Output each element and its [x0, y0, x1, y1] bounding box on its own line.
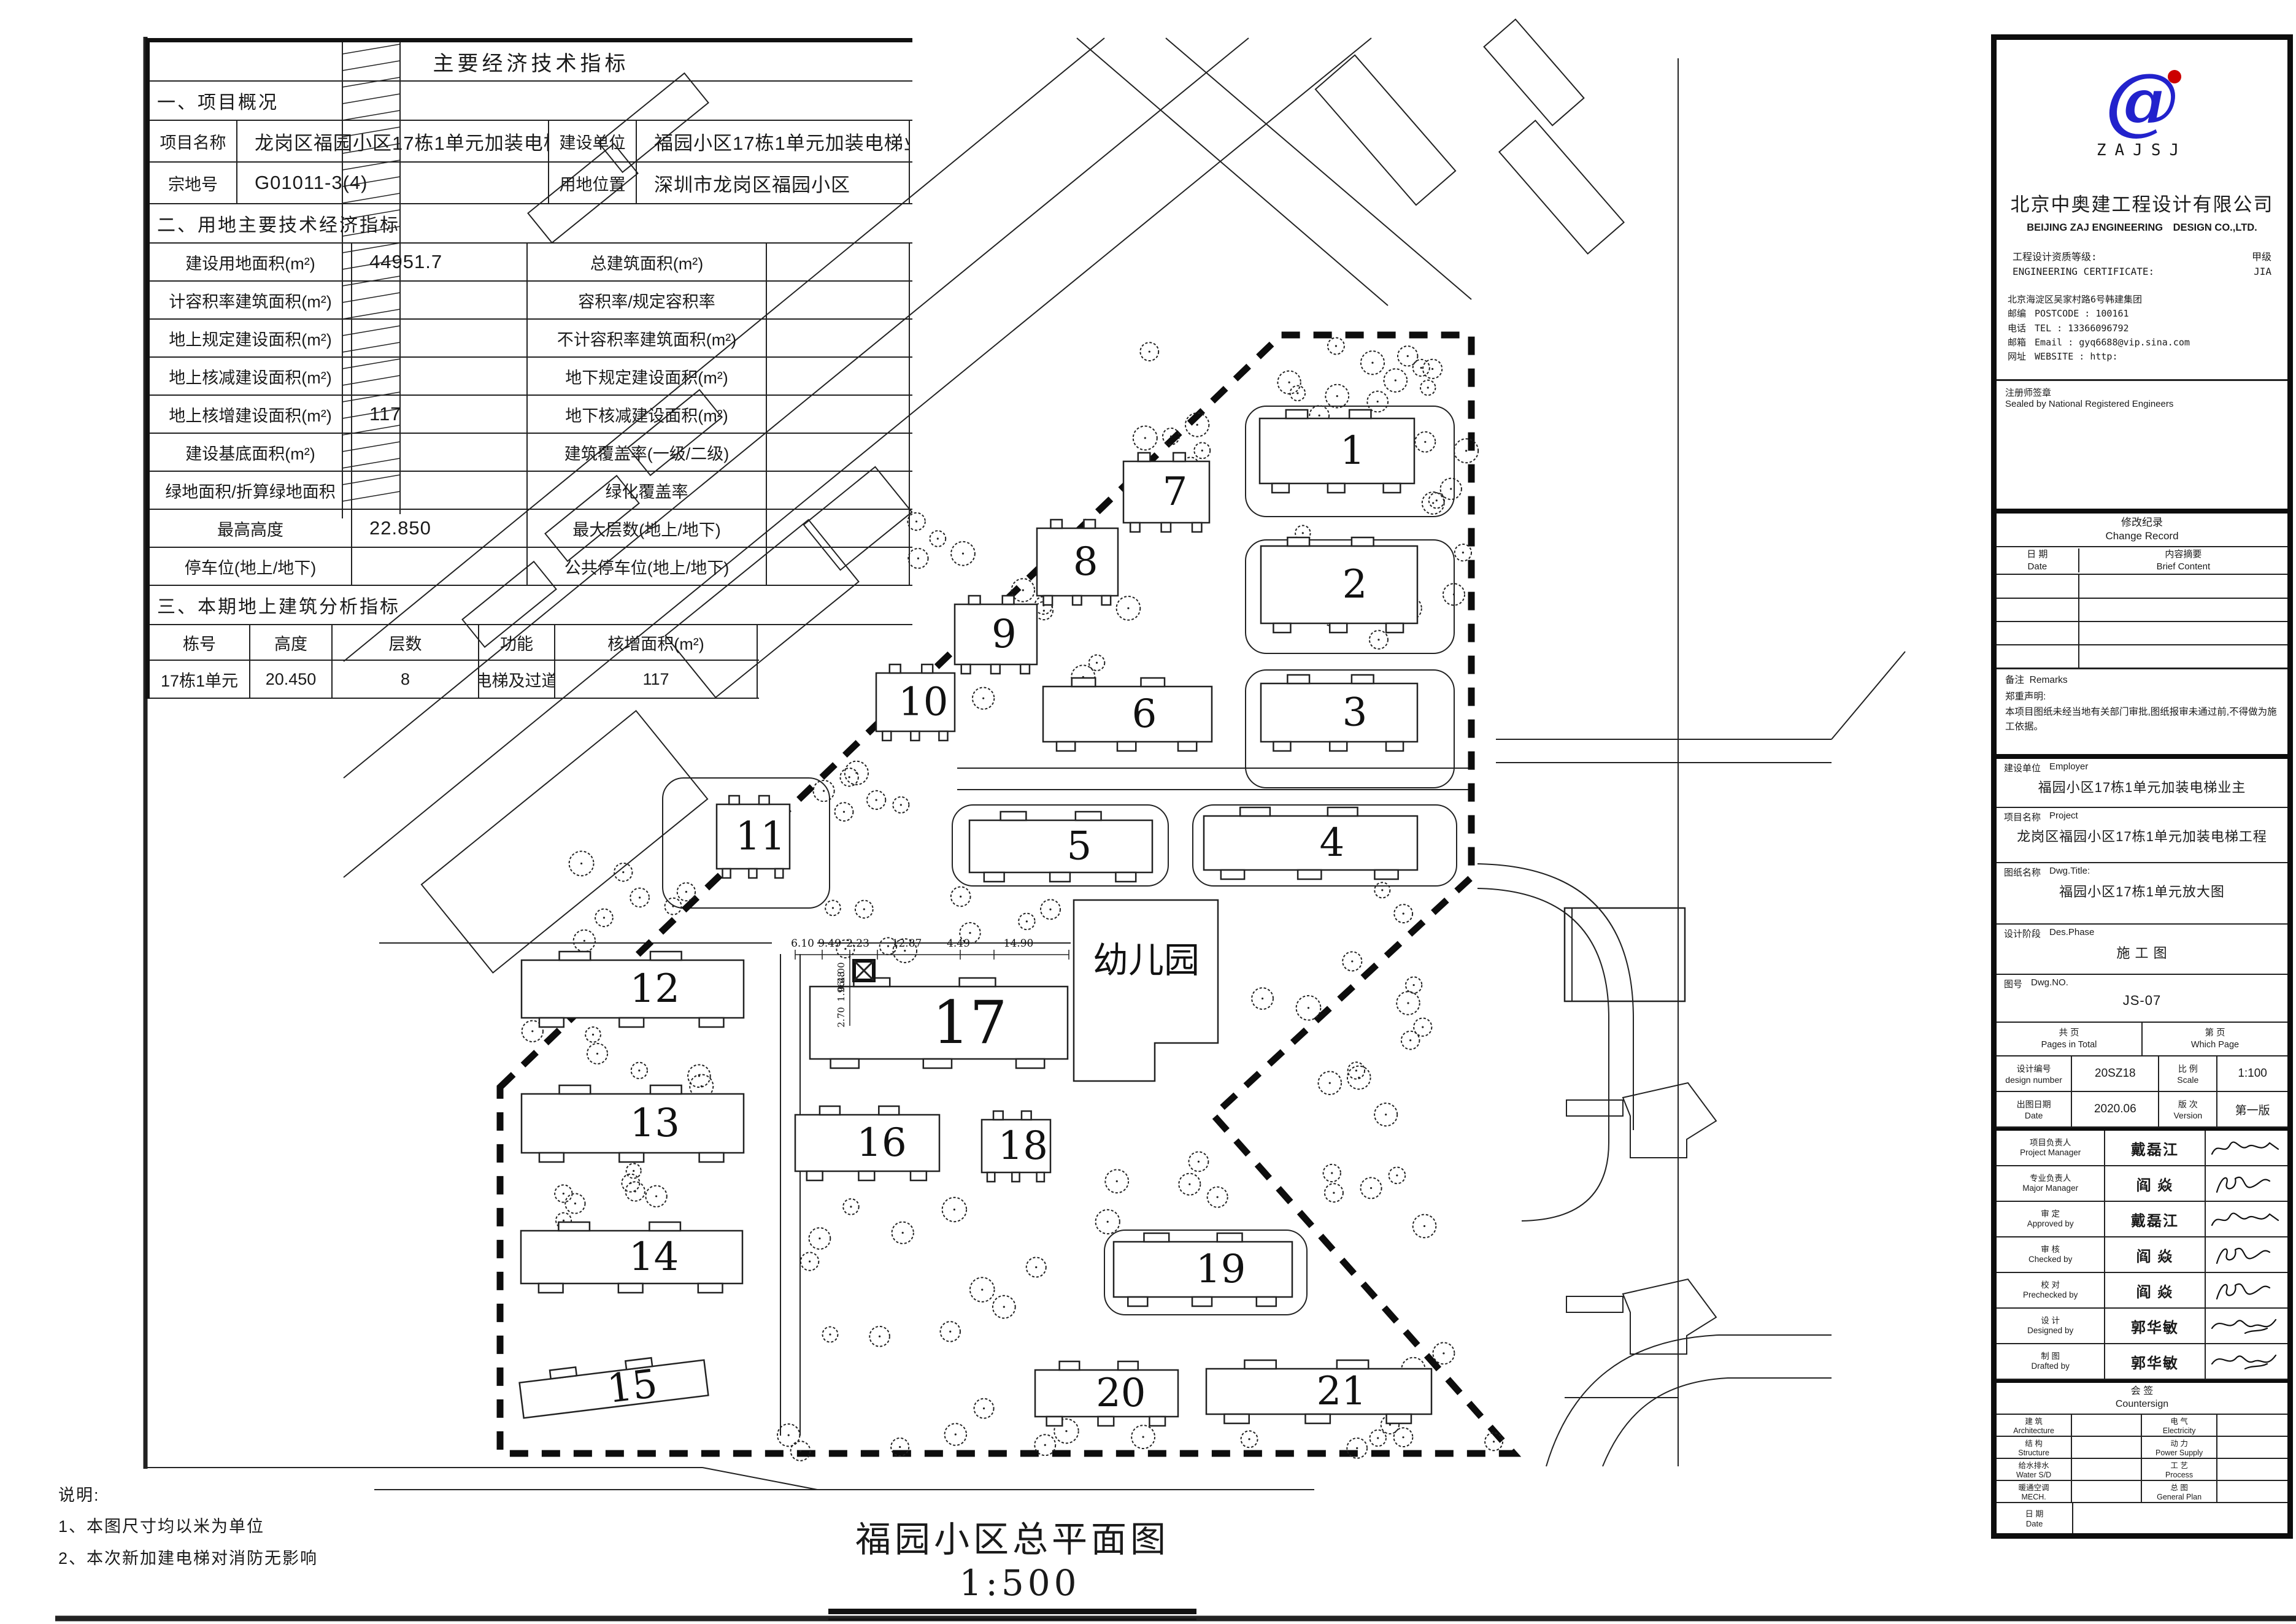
tree-symbol — [850, 1206, 852, 1207]
tree-symbol — [1396, 1174, 1398, 1176]
road-line — [1832, 652, 1905, 739]
building-11: 11 — [717, 796, 790, 878]
countersign-date-row: 日 期Date — [1997, 1503, 2287, 1533]
plan-title-text: 福园小区总平面图 — [855, 1518, 1169, 1560]
building-outline — [1330, 623, 1347, 633]
tree-symbol — [955, 1433, 957, 1435]
tree-symbol — [899, 1446, 901, 1448]
analysis-header-cell: 层数 — [333, 625, 479, 660]
tree-symbol — [1116, 1180, 1118, 1182]
signature-graphic — [2209, 1242, 2283, 1267]
building-outline — [1044, 596, 1053, 605]
metric-label: 停车位(地上/地下) — [150, 548, 352, 585]
tree-symbol — [832, 907, 834, 909]
tree-symbol — [1462, 552, 1464, 553]
dimension-value: 14.90 — [1004, 937, 1034, 950]
building-number-label: 11 — [736, 814, 785, 860]
project-row-label: 项目名称 — [150, 121, 237, 161]
tree-symbol — [1329, 1082, 1331, 1084]
change-record-title-cn: 修改纪录 — [1997, 516, 2287, 530]
building-outline — [1204, 816, 1417, 870]
tree-symbol — [900, 804, 902, 806]
building-15: 15 — [518, 1352, 709, 1423]
metric-label: 容积率/规定容积率 — [528, 282, 767, 318]
company-logo-section: @ ZAJSJ — [1997, 40, 2287, 184]
metric-label: 地上核减建设面积(m²) — [150, 358, 352, 394]
metric-value — [767, 396, 910, 433]
building-outline — [1374, 870, 1398, 879]
tree-symbol — [1049, 909, 1051, 910]
meta-row: 出图日期Date2020.06版 次Version第一版 — [1997, 1092, 2287, 1128]
building-outline — [1349, 410, 1371, 418]
cert-label-cn: 工程设计资质等级: — [2013, 250, 2097, 264]
building-outline — [1328, 807, 1358, 816]
remarks-section: 备注 Remarks 郑重声明: 本项目图纸未经当地有关部门审批,图纸报审未通过… — [1997, 669, 2287, 759]
project-row-value: 龙岗区福园小区17栋1单元加装电梯工程 — [237, 121, 549, 161]
signature-graphic — [2209, 1314, 2283, 1338]
personnel-row: 专业负责人Major Manager阎 焱 — [1997, 1166, 2287, 1202]
tree-symbol — [1142, 1436, 1144, 1437]
tree-symbol — [876, 799, 877, 801]
tree-symbol — [1407, 1002, 1409, 1004]
building-number-label: 1 — [1340, 428, 1365, 474]
contact-row: 邮编POSTCODE : 100161 — [2008, 307, 2276, 321]
building-4: 4 — [1204, 807, 1417, 879]
building-outline — [911, 731, 919, 741]
tree-symbol — [1127, 607, 1129, 609]
project-row-label: 宗地号 — [150, 163, 237, 203]
tree-symbol — [1431, 368, 1433, 370]
tree-symbol — [962, 553, 964, 555]
tree-symbol — [592, 1034, 594, 1036]
tree-symbol — [1424, 441, 1426, 443]
building-outline — [539, 1283, 563, 1293]
metric-value — [352, 358, 528, 394]
economic-indicator-table: 主要经济技术指标 一、项目概况 项目名称龙岗区福园小区17栋1单元加装电梯工程建… — [145, 38, 912, 699]
building-outline — [560, 1085, 591, 1094]
building-outline — [1003, 596, 1014, 604]
building-outline — [729, 796, 739, 804]
building-17: 17 — [810, 978, 1068, 1068]
building-outline — [1050, 872, 1070, 882]
building-number-label: 15 — [605, 1361, 660, 1412]
tree-symbol — [1198, 1161, 1200, 1163]
building-outline — [961, 664, 971, 674]
change-record-empty-row — [1997, 599, 2287, 622]
metric-label: 地下核减建设面积(m²) — [528, 396, 767, 433]
building-outline — [650, 1085, 682, 1094]
kindergarten-outline — [1074, 900, 1218, 1081]
meta-row: 设计编号design number20SZ18比 例Scale1:100 — [1997, 1056, 2287, 1092]
section3-heading: 三、本期地上建筑分析指标 — [150, 586, 912, 625]
tree-symbol — [1333, 1192, 1335, 1194]
tree-symbol — [655, 1195, 657, 1197]
tree-symbol — [1170, 436, 1172, 437]
tree-symbol — [1370, 1187, 1372, 1189]
tree-symbol — [1248, 1438, 1250, 1440]
building-outline — [1261, 683, 1417, 742]
building-14: 14 — [521, 1222, 742, 1293]
change-record-section: 修改纪录 Change Record 日 期Date 内容摘要Brief Con… — [1997, 514, 2287, 669]
tree-symbol — [1432, 502, 1434, 504]
building-number-label: 18 — [998, 1123, 1047, 1169]
personnel-name: 阎 焱 — [2105, 1237, 2205, 1272]
building-outline — [1022, 1111, 1031, 1120]
building-outline — [882, 731, 891, 741]
building-outline — [1330, 742, 1347, 751]
company-name: 北京中奥建工程设计有限公司 BEIJING ZAJ ENGINEERING DE… — [1997, 184, 2287, 239]
personnel-row: 项目负责人Project Manager戴磊江 — [1997, 1131, 2287, 1166]
tree-symbol — [1443, 1352, 1444, 1354]
tree-symbol — [1422, 1026, 1423, 1028]
contact-row: 电话TEL : 13366096792 — [2008, 321, 2276, 336]
building-outline — [1287, 537, 1309, 546]
building-number-label: 3 — [1343, 690, 1368, 736]
building-outline — [1305, 1414, 1330, 1423]
tree-symbol — [698, 1075, 700, 1077]
building-outline — [1337, 1360, 1368, 1369]
building-5: 5 — [969, 812, 1152, 882]
project-row-value: 福园小区17栋1单元加装电梯业主 — [637, 121, 910, 161]
building-outline — [1115, 872, 1136, 882]
building-outline — [984, 872, 1004, 882]
tree-symbol — [1296, 392, 1298, 394]
metric-value — [767, 510, 910, 547]
building-number-label: 6 — [1132, 691, 1157, 737]
building-number-label: 21 — [1316, 1369, 1366, 1414]
building-outline — [1130, 523, 1139, 532]
building-outline — [1076, 812, 1101, 820]
metric-label: 总建筑面积(m²) — [528, 244, 767, 280]
tree-symbol — [1377, 639, 1379, 641]
tree-symbol — [685, 891, 687, 893]
metric-value — [767, 244, 910, 280]
section1-heading: 一、项目概况 — [150, 82, 912, 121]
tree-symbol — [1493, 1441, 1495, 1442]
plan-scale-text: 1:500 — [959, 1562, 1080, 1604]
building-outline — [539, 1153, 564, 1162]
which-page-cell: 第 页Which Page — [2143, 1023, 2287, 1055]
personnel-name: 阎 焱 — [2105, 1273, 2205, 1307]
tree-symbol — [1377, 1437, 1379, 1439]
metric-value — [767, 282, 910, 318]
tree-symbol — [1450, 488, 1452, 490]
seal-label-cn: 注册师签章 — [2005, 386, 2279, 399]
metric-label: 绿地面积/折算绿地面积 — [150, 472, 352, 509]
tree-symbol — [855, 772, 857, 774]
building-outline — [649, 1222, 680, 1231]
seal-section: 注册师签章 Sealed by National Registered Engi… — [1997, 381, 2287, 513]
tree-symbol — [788, 1434, 790, 1436]
building-outline — [969, 820, 1152, 872]
titleblock-field-project: 项目名称Project龙岗区福园小区17栋1单元加装电梯工程 — [1997, 808, 2287, 863]
note-item: 2、本次新加建电梯对消防无影响 — [58, 1543, 318, 1574]
tree-symbol — [639, 896, 641, 898]
building-outline — [698, 1283, 723, 1293]
change-col-content: 内容摘要Brief Content — [2079, 548, 2287, 572]
remarks-label-cn: 备注 — [2005, 675, 2024, 685]
building-outline — [1273, 623, 1290, 633]
building-outline — [539, 1018, 564, 1027]
tree-symbol — [969, 932, 971, 934]
building-outline — [699, 1153, 724, 1162]
building-number-label: 17 — [932, 988, 1007, 1057]
tree-symbol — [983, 1407, 985, 1409]
personnel-name: 戴磊江 — [2105, 1202, 2205, 1236]
metric-value — [767, 358, 910, 394]
tree-symbol — [1217, 1196, 1219, 1198]
building-outline — [1098, 1417, 1114, 1426]
building-13: 13 — [522, 1085, 744, 1162]
personnel-name: 戴磊江 — [2105, 1131, 2205, 1165]
tree-symbol — [1402, 1436, 1404, 1438]
tree-symbol — [584, 940, 585, 942]
tree-symbol — [1385, 1114, 1387, 1115]
adjacent-building-outline — [1566, 1296, 1623, 1312]
tree-symbol — [1144, 437, 1146, 439]
metric-label: 地下规定建设面积(m²) — [528, 358, 767, 394]
dimension-value: 9.49 — [818, 937, 841, 950]
building-outline — [993, 1111, 1003, 1120]
building-outline — [1244, 1360, 1276, 1369]
tree-symbol — [1413, 984, 1415, 986]
tree-symbol — [902, 1232, 904, 1234]
building-6: 6 — [1043, 678, 1212, 751]
tree-symbol — [1377, 401, 1379, 402]
tree-symbol — [949, 1331, 951, 1333]
road-line — [1077, 38, 1388, 306]
remarks-label-en: Remarks — [2030, 675, 2068, 685]
building-outline — [619, 1018, 644, 1027]
tree-symbol — [863, 908, 865, 910]
building-outline — [1261, 546, 1417, 623]
building-outline — [1073, 596, 1082, 605]
building-outline — [1257, 1297, 1276, 1306]
tree-symbol — [843, 811, 845, 813]
metric-label: 公共停车位(地上/地下) — [528, 548, 767, 585]
tree-symbol — [633, 1170, 634, 1172]
countersign-row: 结 构Structure动 力Power Supply — [1997, 1437, 2287, 1459]
tree-symbol — [1351, 960, 1353, 962]
metric-label: 地上核增建设面积(m²) — [150, 396, 352, 433]
tree-symbol — [849, 776, 850, 778]
building-outline — [759, 796, 769, 804]
building-16: 16 — [795, 1106, 939, 1180]
tree-symbol — [1043, 610, 1045, 612]
tree-symbol — [819, 1237, 820, 1239]
personnel-row: 审 核Checked by阎 焱 — [1997, 1237, 2287, 1273]
building-outline — [1287, 675, 1309, 683]
plan-title-underline — [828, 1609, 1196, 1620]
tree-symbol — [1355, 1069, 1357, 1071]
building-outline — [1141, 678, 1165, 687]
building-number-label: 4 — [1319, 820, 1344, 866]
tree-symbol — [1331, 1172, 1333, 1174]
analysis-header-cell: 栋号 — [150, 625, 250, 660]
tree-symbol — [1026, 920, 1028, 922]
metric-value — [352, 320, 528, 356]
plan-title: 福园小区总平面图 1:500 — [785, 1510, 1239, 1620]
metric-label: 地上规定建设面积(m²) — [150, 320, 352, 356]
building-number-label: 7 — [1163, 469, 1188, 515]
building-outline — [1178, 742, 1196, 751]
building-outline — [699, 1018, 724, 1027]
tree-symbol — [1356, 1447, 1358, 1449]
building-outline — [1138, 453, 1150, 461]
building-21: 21 — [1206, 1360, 1431, 1423]
countersign-row: 暖通空调MECH.总 图General Plan — [1997, 1481, 2287, 1503]
dimension-value: 1.96 — [836, 981, 847, 1001]
metric-label: 建设用地面积(m²) — [150, 244, 352, 280]
building-outline — [775, 869, 783, 878]
building-outline — [1352, 537, 1374, 546]
pages-total-cell: 共 页Pages in Total — [1997, 1023, 2143, 1055]
building-outline — [1272, 483, 1289, 493]
signature-graphic — [2209, 1171, 2283, 1196]
building-outline — [858, 1171, 874, 1180]
tree-symbol — [1427, 387, 1429, 388]
tree-symbol — [672, 906, 674, 907]
building-outline — [1037, 1172, 1044, 1182]
signature-graphic — [2209, 1136, 2283, 1160]
building-outline — [1273, 742, 1290, 751]
metric-label: 建设基底面积(m²) — [150, 434, 352, 471]
building-outline — [807, 1171, 823, 1180]
tree-symbol — [1423, 1225, 1425, 1227]
countersign-row: 给水排水Water S/D工 艺Process — [1997, 1459, 2287, 1481]
tree-symbol — [563, 1193, 564, 1195]
signature-graphic — [2209, 1349, 2283, 1374]
metric-label: 不计容积率建筑面积(m²) — [528, 320, 767, 356]
building-outline — [1149, 1417, 1165, 1426]
tree-symbol — [1096, 662, 1098, 664]
cert-value-en: JIA — [2254, 264, 2271, 279]
tree-symbol — [580, 863, 582, 864]
company-name-cn: 北京中奥建工程设计有限公司 — [2011, 189, 2274, 217]
tree-symbol — [1336, 395, 1338, 397]
road-line — [1477, 864, 1633, 1130]
titleblock-field-dwgtitle: 图纸名称Dwg.Title:福园小区17栋1单元放大图 — [1997, 863, 2287, 925]
metric-value: 117 — [352, 396, 528, 433]
company-logo-at-icon: @ — [2105, 64, 2179, 137]
building-number-label: 5 — [1066, 824, 1092, 869]
dimension-value: 12.87 — [892, 937, 922, 950]
building-8: 8 — [1037, 520, 1118, 605]
building-outline — [1387, 1414, 1411, 1423]
change-record-empty-row — [1997, 622, 2287, 645]
road-line — [1477, 888, 1609, 1221]
tree-symbol — [1403, 913, 1404, 915]
building-number-label: 14 — [629, 1234, 679, 1280]
tree-symbol — [531, 1030, 533, 1032]
analysis-value-cell: 20.450 — [250, 661, 333, 698]
building-2: 2 — [1261, 537, 1417, 633]
tree-symbol — [630, 1182, 631, 1184]
tree-symbol — [1436, 499, 1438, 501]
tree-symbol — [1371, 362, 1373, 364]
building-number-label: 12 — [630, 966, 679, 1012]
tree-symbol — [1381, 889, 1383, 891]
building-outline — [831, 1059, 859, 1068]
tree-symbol — [603, 917, 605, 918]
building-outline — [1128, 1297, 1147, 1306]
building-outline — [1386, 623, 1403, 633]
project-row-value: 深圳市龙岗区福园小区 — [637, 163, 910, 203]
indicator-table-title: 主要经济技术指标 — [150, 42, 912, 82]
building-outline — [1260, 418, 1414, 483]
tree-symbol — [953, 1209, 955, 1210]
tree-symbol — [1319, 415, 1320, 417]
tree-symbol — [887, 945, 889, 947]
tree-symbol — [1044, 1444, 1046, 1446]
building-outline — [1043, 687, 1212, 742]
tree-symbol — [1107, 1221, 1109, 1223]
building-outline — [1016, 1059, 1044, 1068]
cert-label-en: ENGINEERING CERTIFICATE: — [2013, 264, 2154, 279]
tree-symbol — [1407, 355, 1409, 357]
metric-value — [767, 472, 910, 509]
tree-symbol — [563, 1220, 564, 1222]
personnel-name: 郭华敏 — [2105, 1344, 2205, 1379]
tree-symbol — [915, 520, 917, 522]
building-12: 12 — [522, 952, 744, 1027]
countersign-heading: 会 签 Countersign — [1997, 1380, 2287, 1414]
tree-symbol — [1065, 1430, 1067, 1432]
analysis-header-cell: 核增面积(m²) — [555, 625, 758, 660]
tree-symbol — [1335, 345, 1337, 347]
tree-symbol — [1409, 1039, 1411, 1041]
building-number-label: 19 — [1196, 1247, 1246, 1292]
tree-symbol — [1395, 379, 1396, 381]
building-number-label: 20 — [1096, 1371, 1146, 1416]
building-3: 3 — [1261, 675, 1417, 751]
building-outline — [1352, 675, 1374, 683]
analysis-header-cell: 功能 — [479, 625, 555, 660]
building-outline — [939, 731, 947, 741]
building-outline — [1102, 596, 1111, 605]
building-outline — [1050, 520, 1061, 528]
titleblock-field-desphase: 设计阶段Des.Phase施 工 图 — [1997, 925, 2287, 975]
adjacent-building-outline — [422, 711, 707, 973]
notes-heading: 说明: — [58, 1480, 318, 1511]
adjacent-building-outline — [1484, 20, 1584, 126]
building-20: 20 — [1035, 1361, 1178, 1426]
building-outline — [619, 1153, 644, 1162]
change-record-title-en: Change Record — [1997, 529, 2287, 544]
project-row-value: G01011-3(4) — [237, 163, 549, 203]
tree-symbol — [1196, 424, 1198, 426]
tree-symbol — [799, 1450, 801, 1452]
metric-value: 22.850 — [352, 510, 528, 547]
tree-symbol — [1201, 450, 1203, 452]
adjacent-building-outline — [1623, 1279, 1716, 1354]
title-block: @ ZAJSJ 北京中奥建工程设计有限公司 BEIJING ZAJ ENGINE… — [1991, 34, 2293, 1539]
tree-symbol — [1188, 1183, 1190, 1185]
dimension-value: 6.10 — [791, 937, 814, 950]
metric-value: 44951.7 — [352, 244, 528, 280]
tree-symbol — [1308, 1007, 1309, 1009]
signature-graphic — [2209, 1278, 2283, 1303]
tree-symbol — [829, 1333, 831, 1335]
logo-subtext: ZAJSJ — [2097, 141, 2187, 160]
section2-heading: 二、用地主要技术经济指标 — [150, 204, 912, 244]
road-line — [1603, 1378, 1832, 1466]
company-address-section: 北京海淀区吴家村路6号韩建集团 邮编POSTCODE : 100161电话TEL… — [1997, 290, 2287, 381]
metric-value — [767, 320, 910, 356]
tree-symbol — [904, 950, 906, 952]
building-outline — [1217, 1233, 1242, 1242]
drawing-sheet: 178291063115412171316181419152021幼儿园6.10… — [0, 0, 2296, 1624]
